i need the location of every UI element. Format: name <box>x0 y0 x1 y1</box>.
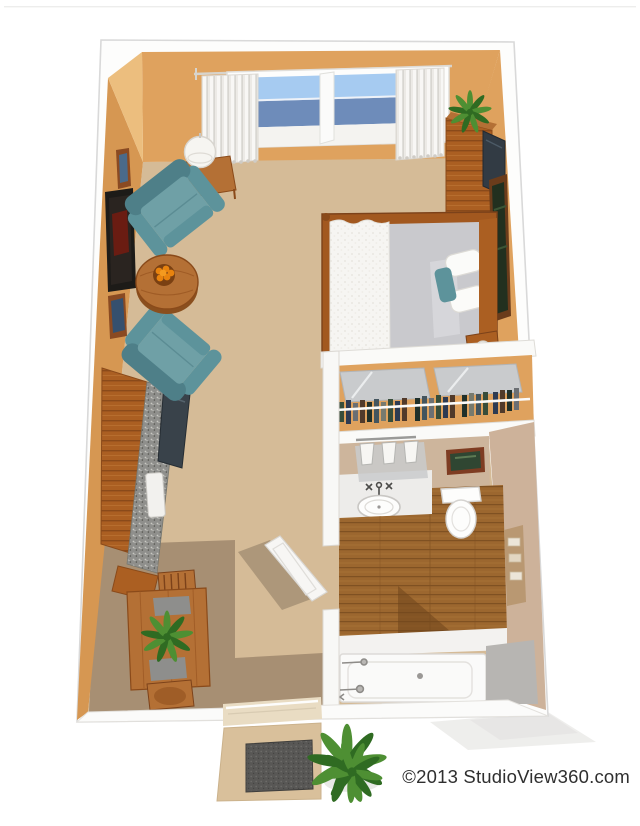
coffee-table <box>136 255 198 314</box>
tile-floor <box>486 640 538 704</box>
bed-blanket <box>330 220 390 358</box>
bathtub <box>336 654 486 702</box>
vanity-lights <box>355 437 428 482</box>
curtain-right <box>396 68 444 160</box>
bath-wall-upper <box>323 351 339 546</box>
bath-wall-lower <box>323 609 339 711</box>
tub-drain <box>417 673 423 679</box>
top-hairline <box>4 6 636 7</box>
floorplan-screenshot: ©2013 StudioView360.com <box>0 0 640 826</box>
studio-floorplan-render: ©2013 StudioView360.com <box>0 0 640 826</box>
placemat-top <box>153 596 191 616</box>
bathroom <box>335 422 546 710</box>
kitchen-sink <box>145 472 165 517</box>
vanity-art <box>446 447 485 475</box>
copyright-text: ©2013 StudioView360.com <box>402 766 630 787</box>
dining-chair-bottom <box>147 680 194 710</box>
doormat <box>246 740 313 792</box>
placemat-bottom <box>149 657 187 681</box>
shelf-niche <box>504 525 526 606</box>
window-mullion <box>320 72 334 144</box>
